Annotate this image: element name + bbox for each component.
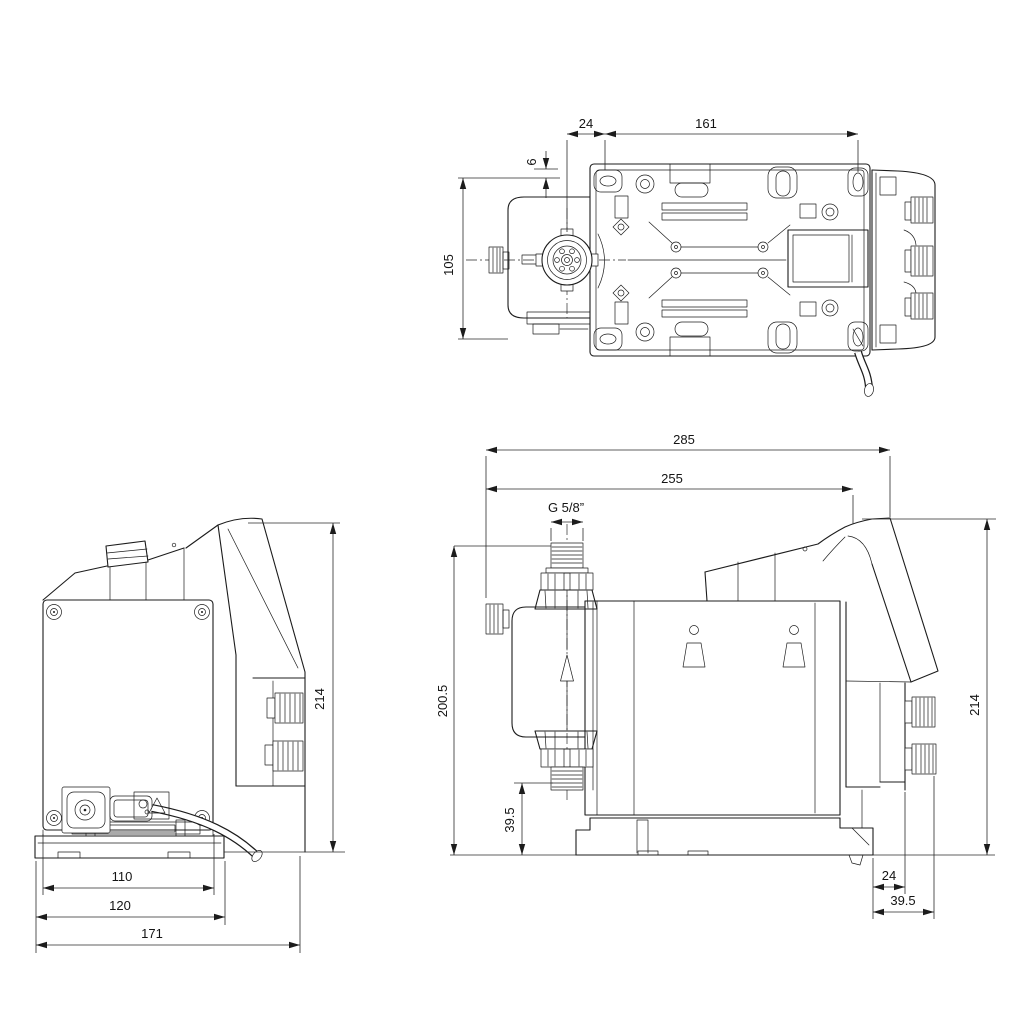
side-view-dimensions: 285 255 G 5/8” 200.5 39.5 <box>435 432 996 919</box>
power-cable-top <box>858 352 875 397</box>
dim-label-171: 171 <box>141 926 163 941</box>
flow-direction-arrow-icon <box>561 655 574 730</box>
control-panel-back <box>218 518 305 852</box>
cable-gland-connector <box>905 197 933 223</box>
back-view-dimensions: 214 110 120 171 <box>36 523 345 953</box>
control-panel-side <box>705 518 938 682</box>
panel-screw <box>195 605 210 620</box>
dim-label-200-5: 200.5 <box>435 685 450 718</box>
dim-label-105: 105 <box>441 254 456 276</box>
pump-body-side <box>585 601 846 815</box>
back-view: 214 110 120 171 <box>35 518 345 953</box>
top-view-dimensions: 24 161 6 105 <box>441 116 858 339</box>
top-housing <box>43 525 218 600</box>
deaeration-knob-side <box>486 604 509 634</box>
dim-label-39-5-left: 39.5 <box>502 807 517 832</box>
dim-label-thread: G 5/8” <box>548 500 584 515</box>
cable-gland-connector <box>267 693 303 723</box>
suction-discharge-fitting-top <box>535 543 597 609</box>
drawing-page: 24 161 6 105 <box>0 0 1024 1024</box>
side-view: 285 255 G 5/8” 200.5 39.5 <box>435 432 996 919</box>
technical-drawing-canvas: 24 161 6 105 <box>0 0 1024 1024</box>
dim-label-120: 120 <box>109 898 131 913</box>
dosing-head-side <box>486 524 597 800</box>
dim-label-6: 6 <box>524 158 539 165</box>
cable-gland-connector <box>905 697 935 727</box>
dim-label-161: 161 <box>695 116 717 131</box>
dim-label-110: 110 <box>112 869 133 884</box>
cable-gland-connector <box>265 741 303 771</box>
dim-label-24-side: 24 <box>882 868 896 883</box>
dim-label-255: 255 <box>661 471 683 486</box>
wall-mount-slot <box>783 643 805 667</box>
dim-label-214-side: 214 <box>967 694 982 716</box>
panel-screw <box>47 605 62 620</box>
cable-gland-connector <box>905 293 933 319</box>
pump-head-top <box>466 197 626 334</box>
suction-discharge-fitting-bottom <box>535 731 597 790</box>
dim-label-285: 285 <box>673 432 695 447</box>
dim-label-39-5-side: 39.5 <box>890 893 915 908</box>
dim-label-214-back: 214 <box>312 688 327 710</box>
power-connector <box>62 787 152 833</box>
cable-gland-connector <box>905 246 933 276</box>
cable-gland-connector <box>905 744 936 774</box>
dosing-head-flange <box>536 229 598 291</box>
mounting-plate <box>590 164 870 356</box>
base-plate-side <box>576 790 873 865</box>
connector-box-side <box>846 683 936 790</box>
dim-label-24: 24 <box>579 116 593 131</box>
wall-mount-slot <box>683 643 705 667</box>
panel-screw <box>47 811 62 826</box>
top-view: 24 161 6 105 <box>441 116 935 397</box>
